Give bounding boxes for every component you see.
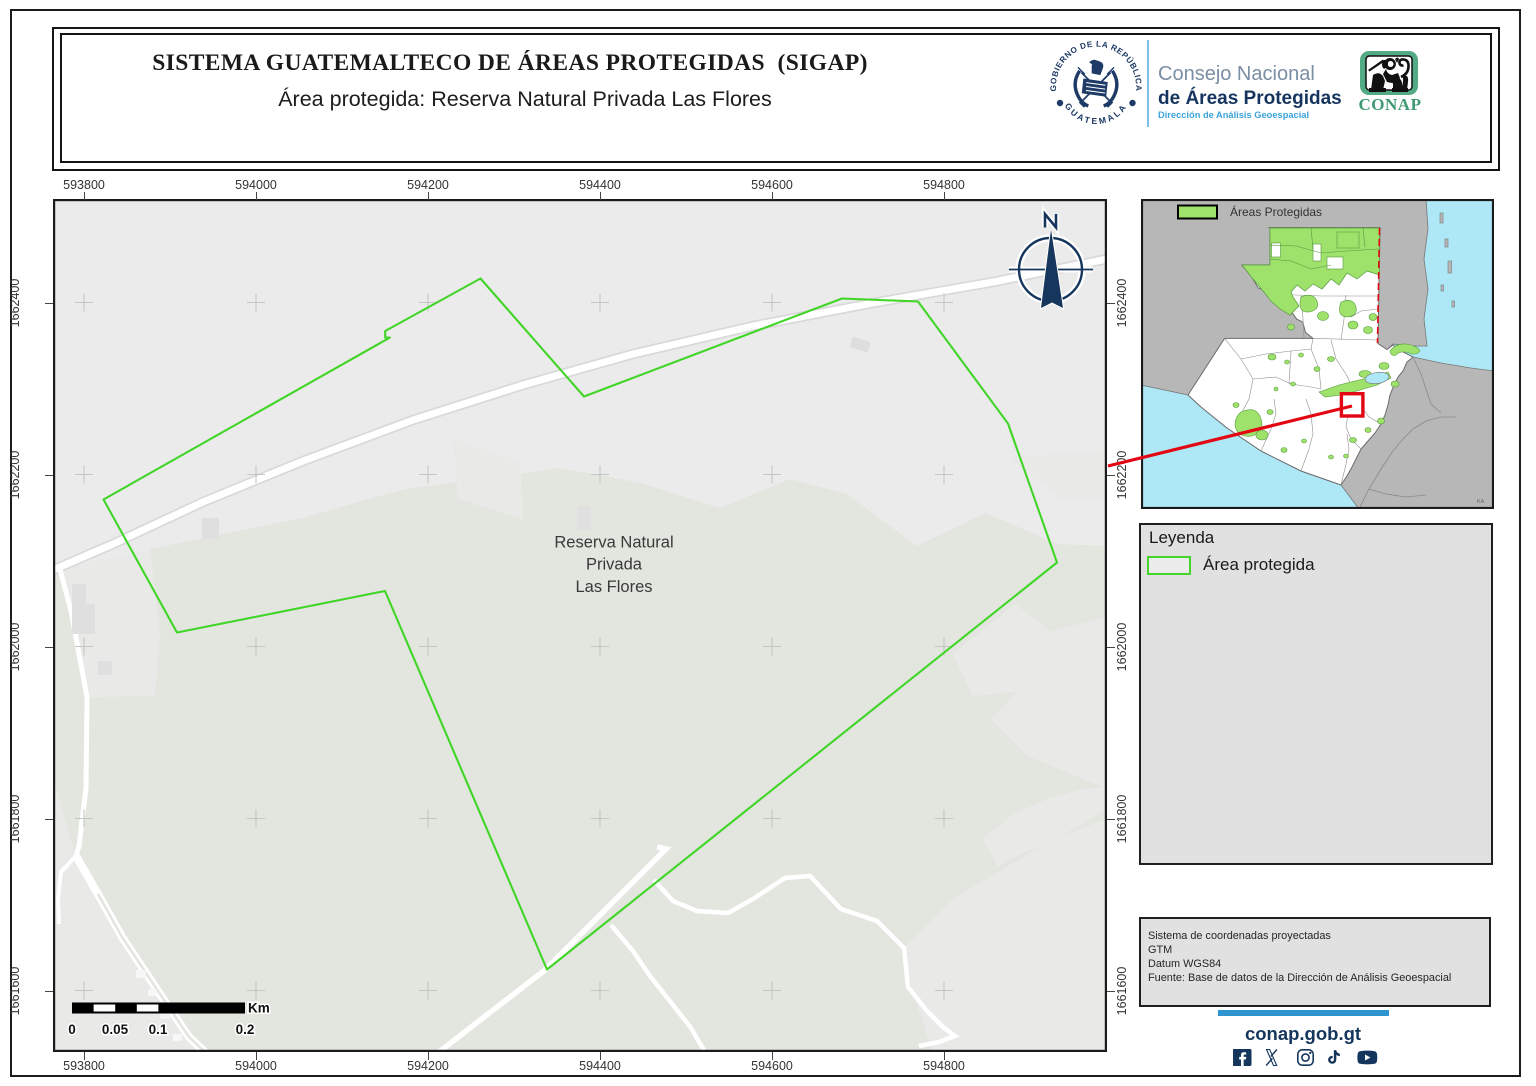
svg-text:Reserva Natural: Reserva Natural	[554, 534, 673, 552]
svg-text:Km: Km	[248, 1001, 270, 1016]
svg-text:CONAP: CONAP	[1359, 95, 1421, 114]
svg-text:KA: KA	[1477, 499, 1485, 505]
svg-text:0: 0	[68, 1022, 76, 1037]
svg-text:0.1: 0.1	[149, 1022, 168, 1037]
svg-text:0.05: 0.05	[102, 1022, 129, 1037]
svg-text:GUATEMALA: GUATEMALA	[1063, 101, 1129, 126]
svg-text:Áreas Protegidas: Áreas Protegidas	[1230, 204, 1322, 219]
svg-text:Privada: Privada	[586, 556, 643, 574]
svg-text:0.2: 0.2	[236, 1022, 255, 1037]
svg-text:Las Flores: Las Flores	[575, 578, 652, 596]
